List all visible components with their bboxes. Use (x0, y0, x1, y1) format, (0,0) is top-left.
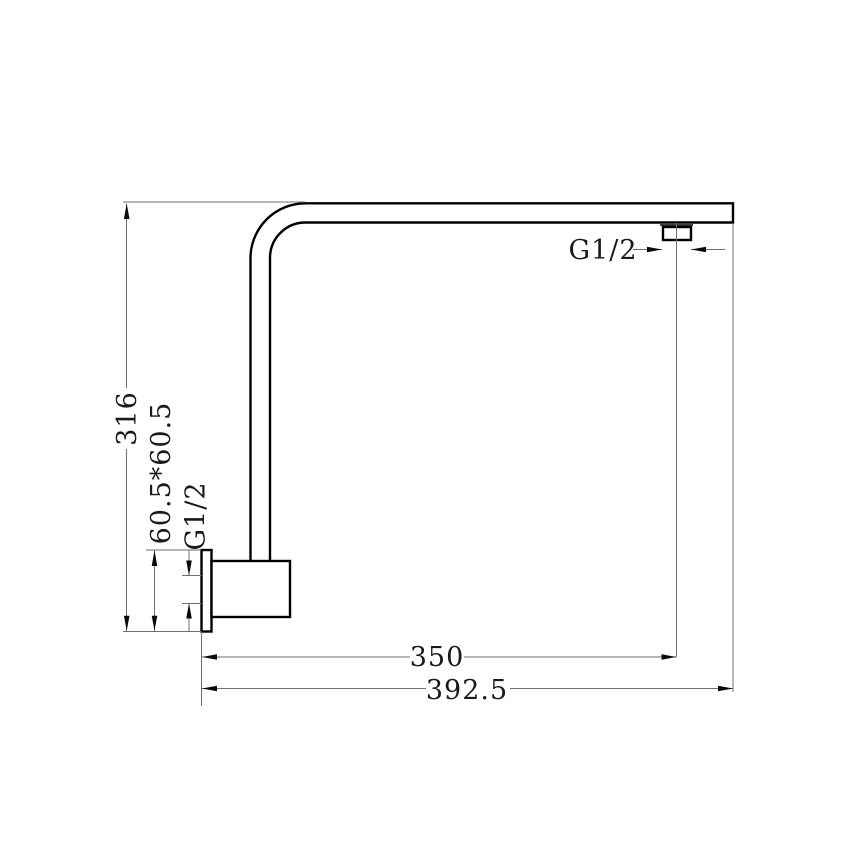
dim-label-flange-size: 60.5*60.5 (146, 402, 177, 545)
dimension-labels: 316 60.5*60.5 G1/2 G1/2 350 392.5 (112, 235, 638, 706)
arrow-316-up (124, 204, 130, 220)
arrow-flange-down (152, 616, 158, 631)
arrow-316-down (124, 616, 130, 631)
arrow-392-left (202, 686, 217, 692)
dim-label-overall: 392.5 (426, 675, 508, 706)
arrow-350-left (202, 654, 217, 660)
arrow-wall-thread-down (186, 561, 192, 576)
dim-label-outlet-thread: G1/2 (568, 235, 637, 266)
arrow-wall-thread-up (186, 604, 192, 619)
mount-body (212, 561, 291, 617)
dim-label-wall-thread: G1/2 (181, 481, 212, 550)
arrow-350-right (662, 654, 677, 660)
dimension-lines (123, 202, 733, 706)
arrow-outlet-thread-right (647, 247, 662, 253)
shower-arm-diagram: 316 60.5*60.5 G1/2 G1/2 350 392.5 (0, 0, 860, 860)
drawing-canvas: 316 60.5*60.5 G1/2 G1/2 350 392.5 (0, 0, 860, 860)
wall-flange (202, 550, 212, 632)
arrow-outlet-thread-left (691, 247, 706, 253)
arrow-392-right (718, 686, 733, 692)
arrow-flange-up (152, 551, 158, 567)
arm-tube-outline (251, 203, 734, 561)
dim-label-outlet-center: 350 (410, 642, 465, 673)
dim-label-height: 316 (112, 391, 143, 446)
shower-arm-outline (202, 203, 734, 631)
